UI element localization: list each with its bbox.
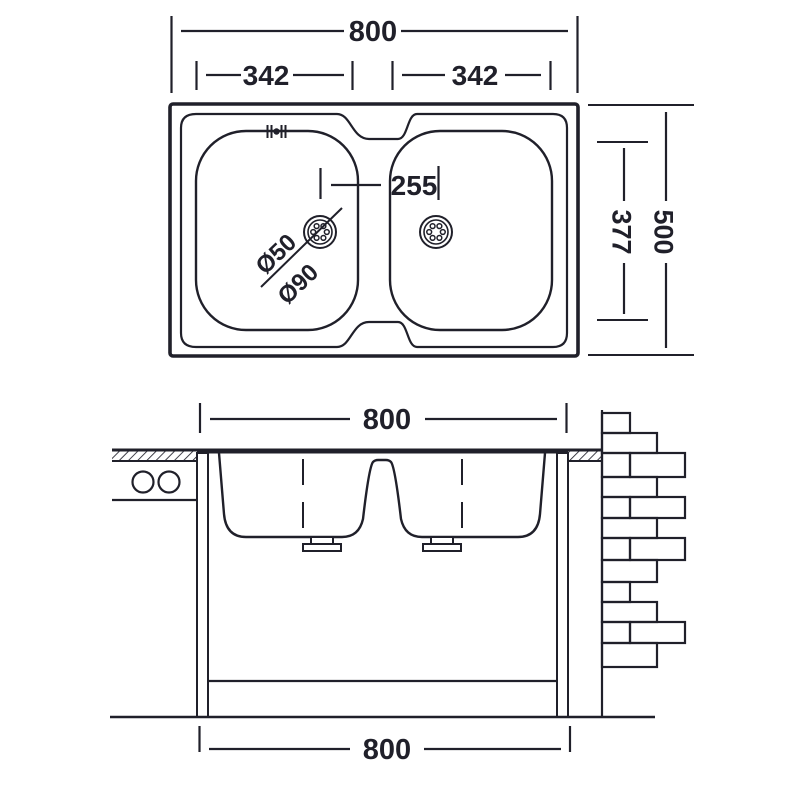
left-drain-section [303, 537, 341, 551]
plan-view: 800 342 342 [170, 16, 694, 356]
countertop-right [568, 452, 602, 462]
left-drain [304, 216, 336, 248]
dim-section-top-width: 800 [200, 403, 567, 436]
dim-bowl-depth: 377 [597, 142, 648, 320]
dim-section-bottom-width: 800 [200, 726, 571, 766]
cabinet-left-panel [197, 453, 208, 717]
right-drain [420, 216, 452, 248]
right-drain-section [423, 537, 461, 551]
dim-label-overall-width: 800 [349, 16, 397, 48]
faucet-hole-left [133, 472, 154, 493]
drawing-svg: 800 342 342 [0, 0, 800, 800]
cabinet-right-panel [557, 453, 568, 717]
sink-outer-rim [170, 104, 578, 356]
dim-overall-width: 800 [172, 16, 578, 93]
countertop-left [112, 452, 197, 501]
dim-drain-offset: 255 [321, 166, 439, 201]
left-bowl-outline [196, 131, 358, 330]
brick-wall [602, 410, 685, 717]
dim-label-right-bowl-width: 342 [452, 60, 499, 91]
dim-label-section-top-width: 800 [363, 404, 411, 436]
dim-left-bowl-width: 342 [197, 60, 353, 91]
dim-right-bowl-width: 342 [393, 60, 551, 91]
right-bowl-outline [390, 131, 552, 330]
dim-label-drain-offset: 255 [391, 170, 438, 201]
dim-label-overall-depth: 500 [649, 209, 679, 254]
dim-label-section-bottom-width: 800 [363, 734, 411, 766]
faucet-hole-right [159, 472, 180, 493]
sink-technical-drawing: 800 342 342 [0, 0, 800, 800]
dim-label-bowl-depth: 377 [607, 209, 637, 254]
sink-bowls-section [219, 453, 545, 537]
section-view: 800 [110, 403, 685, 766]
dim-label-left-bowl-width: 342 [243, 60, 290, 91]
sink-inner-rim [181, 114, 567, 347]
